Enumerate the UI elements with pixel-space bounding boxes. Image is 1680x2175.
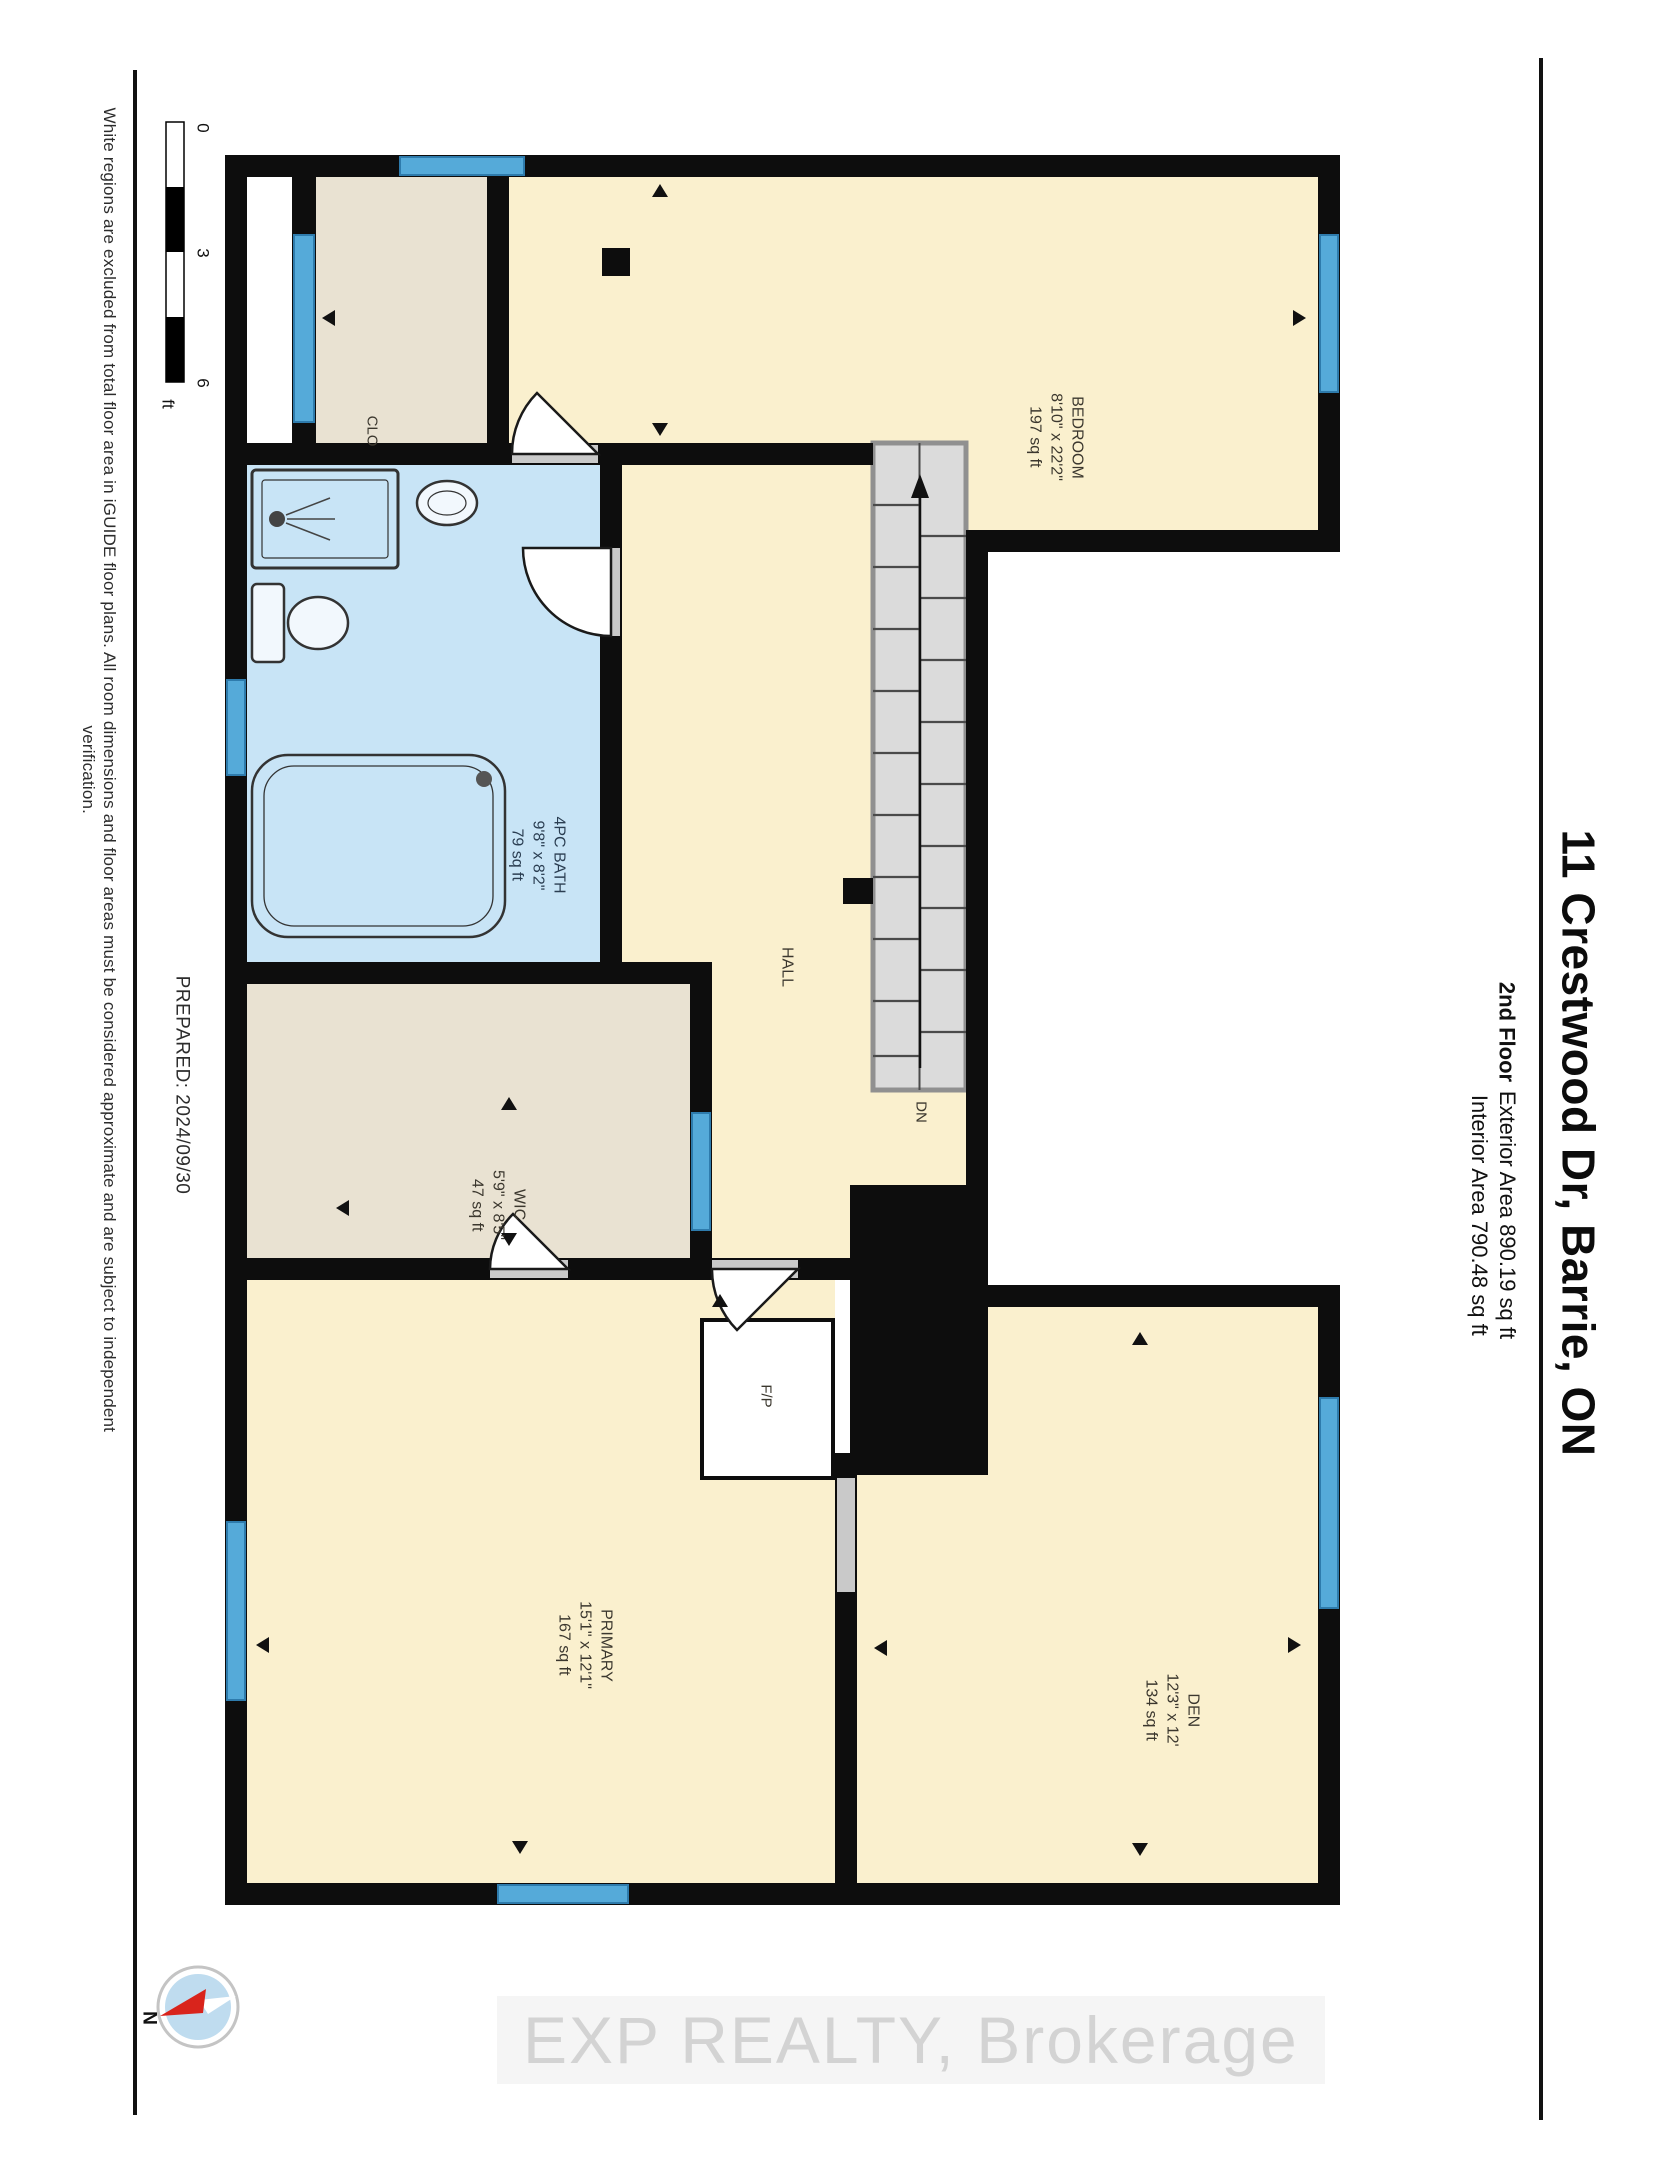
bedroom-post	[602, 248, 630, 276]
scale-bar	[166, 122, 184, 382]
area-summary: Exterior Area 890.19 sq ft Interior Area…	[1465, 1091, 1521, 1339]
compass-icon	[158, 1967, 238, 2047]
room-label-wic: WIC 5'9" x 8'5" 47 sq ft	[467, 1170, 530, 1240]
room-label-bedroom: BEDROOM 8'10" x 22'2" 197 sq ft	[1025, 393, 1088, 481]
floor-label: 2nd Floor	[1497, 982, 1518, 1082]
disclaimer-text: White regions are excluded from total fl…	[78, 68, 120, 1473]
room-label-hall: HALL	[777, 947, 798, 987]
room-label-den: DEN 12'3" x 12' 134 sq ft	[1141, 1673, 1204, 1746]
window-den	[1320, 1398, 1338, 1608]
stair-post	[843, 878, 873, 904]
window-top	[400, 157, 524, 175]
tub-faucet-icon	[476, 771, 492, 787]
window-bath	[227, 680, 245, 775]
chimney-mass	[850, 1185, 988, 1475]
room-label-primary: PRIMARY 15'1" x 12'1" 167 sq ft	[554, 1601, 617, 1689]
scale-unit: ft	[158, 399, 179, 408]
floor-plan-graphic	[0, 0, 1680, 2175]
page-title: 11 Crestwood Dr, Barrie, ON	[1568, 829, 1589, 1456]
window-primary-left	[227, 1522, 245, 1700]
floor-plan-page: White regions are excluded from total fl…	[0, 0, 1680, 2175]
window-bedroom-right	[1320, 235, 1338, 392]
compass-north-label: N	[139, 2011, 160, 2025]
scale-tick-3: 3	[193, 248, 214, 257]
room-label-clo: CLO	[362, 416, 383, 447]
window-hall	[692, 1113, 710, 1230]
scale-tick-6: 6	[193, 378, 214, 387]
prepared-date: PREPARED: 2024/09/30	[172, 976, 193, 1195]
window-primary-bottom	[498, 1885, 628, 1903]
fireplace-label: F/P	[756, 1384, 777, 1407]
stairs-dn-label: DN	[911, 1101, 932, 1123]
window-clo	[294, 235, 314, 422]
sink	[417, 481, 477, 525]
room-fills	[247, 177, 1318, 1883]
room-label-bath: 4PC BATH 9'8" x 8'2" 79 sq ft	[507, 816, 570, 893]
scale-tick-0: 0	[193, 123, 214, 132]
brokerage-watermark: EXP REALTY, Brokerage	[497, 1996, 1325, 2084]
staircase	[873, 443, 966, 1090]
shower-head-icon	[269, 511, 285, 527]
